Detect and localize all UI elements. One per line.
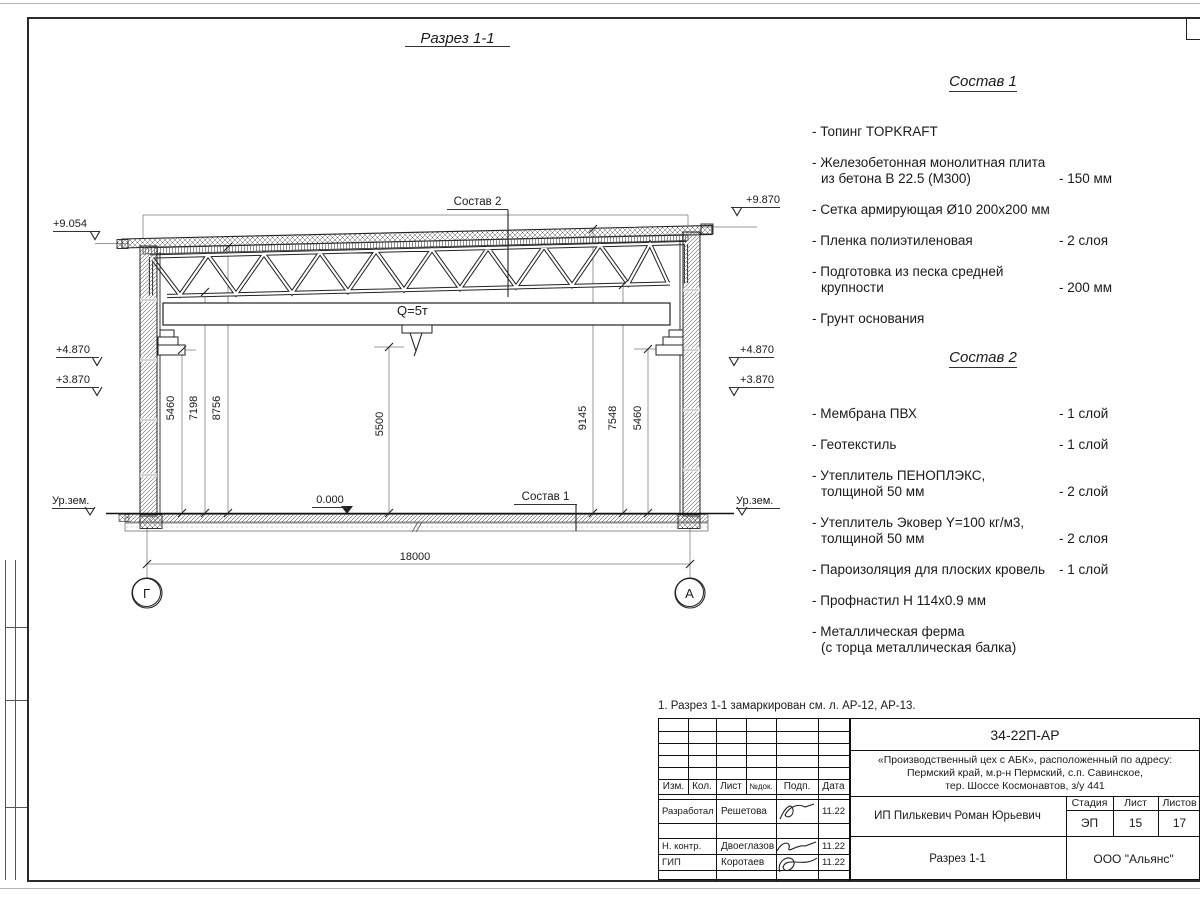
tb-col-data: Дата (818, 779, 849, 794)
dim-right-9145: 9145 (577, 393, 591, 443)
material-name: - Грунт основания (812, 311, 1059, 327)
dim-span: 18000 (385, 551, 445, 563)
zero-level-label: 0.000 (312, 494, 348, 508)
material-value: - 1 слой (1059, 437, 1154, 453)
tb-project-line2: Пермский край, м.р-н Пермский, с.п. Сави… (907, 767, 1143, 780)
tb-date-ncontrol: 11.22 (818, 838, 849, 854)
material-item: - Железобетонная монолитная плита из бет… (812, 155, 1154, 187)
material-value: - 2 слоя (1059, 531, 1154, 547)
corner-stamp-box (1186, 17, 1200, 40)
margin-stamp-line (5, 700, 27, 701)
tb-sheets-label: Листов (1158, 796, 1200, 810)
tb-role-developer: Разработал (659, 799, 719, 823)
material-name: - Профнастил Н 114х0.9 мм (812, 593, 1059, 609)
material-item: - Металлическая ферма (с торца металличе… (812, 624, 1154, 656)
elevation-left-low: +3.870 (56, 374, 99, 388)
elevation-right-low: +3.870 (729, 374, 774, 388)
elevation-right-crane: +4.870 (729, 344, 774, 358)
sheet-bottom-edge (0, 888, 1200, 889)
tb-name-developer: Решетова (718, 799, 779, 823)
material-value: - 150 мм (1059, 171, 1154, 187)
material-name: - Пленка полиэтиленовая (812, 233, 1059, 249)
elevation-right-roof: +9.870 (731, 194, 780, 208)
signature (778, 801, 816, 823)
drawing-sheet: { "sheet": { "note": "1. Разрез 1-1 зама… (0, 0, 1200, 900)
floor (106, 514, 734, 533)
tb-client: ИП Пилькевич Роман Юрьевич (849, 796, 1066, 836)
tb-company: ООО "Альянс" (1066, 836, 1200, 881)
dim-left-5460: 5460 (165, 383, 179, 433)
tb-role-ncontrol: Н. контр. (659, 838, 719, 854)
material-item: - Профнастил Н 114х0.9 мм (812, 593, 1154, 609)
material-name: - Утеплитель ПЕНОПЛЭКС, толщиной 50 мм (812, 468, 1059, 500)
material-item: - Сетка армирующая Ø10 200х200 мм (812, 202, 1154, 218)
tb-col-list: Лист (716, 779, 746, 794)
sostav1-title-text: Состав 1 (949, 73, 1017, 92)
material-name: - Пароизоляция для плоских кровель (812, 562, 1059, 578)
sostav2-title-text: Состав 2 (949, 349, 1017, 368)
sostav2-title: Состав 2 (812, 350, 1154, 366)
material-item: - Геотекстиль - 1 слой (812, 437, 1154, 453)
foundation-left (140, 515, 162, 529)
material-item: - Утеплитель ПЕНОПЛЭКС, толщиной 50 мм -… (812, 468, 1154, 500)
material-item: - Пароизоляция для плоских кровель - 1 с… (812, 562, 1154, 578)
tb-col-izm: Изм. (659, 779, 688, 794)
tb-name-gip: Коротаев (718, 854, 779, 870)
tb-role-gip: ГИП (659, 854, 719, 870)
material-item: - Грунт основания (812, 311, 1154, 327)
sheet-note: 1. Разрез 1-1 замаркирован см. л. АР-12,… (658, 700, 916, 712)
tb-project-line3: тер. Шоссе Космонавтов, з/у 441 (945, 780, 1105, 793)
material-item: - Подготовка из песка средней крупности … (812, 264, 1154, 296)
tb-sheets-value: 17 (1158, 810, 1200, 836)
dim-right-7548: 7548 (607, 393, 621, 443)
dim-center-5500: 5500 (374, 399, 388, 449)
material-value: - 1 слой (1059, 406, 1154, 422)
crane-corbels (158, 330, 683, 355)
tb-section-name: Разрез 1-1 (849, 836, 1066, 881)
ground-level-label-left: Ур.зем. (52, 495, 94, 509)
tb-project: «Производственный цех с АБК», расположен… (849, 750, 1200, 796)
crane-capacity-label: Q=5т (397, 305, 441, 317)
material-value: - 1 слой (1059, 562, 1154, 578)
callout-sostav1: Состав 1 (514, 491, 577, 505)
tb-project-line1: «Производственный цех с АБК», расположен… (878, 754, 1172, 767)
signature (774, 838, 820, 878)
material-name: - Утеплитель Эковер Y=100 кг/м3, толщино… (812, 515, 1059, 547)
foundation-right (678, 515, 700, 529)
dim-left-7198: 7198 (188, 383, 202, 433)
callout-sostav2: Состав 2 (447, 196, 508, 210)
view-title: Разрез 1-1 (405, 33, 510, 47)
tb-sheet-value: 15 (1113, 810, 1158, 836)
tb-date-developer: 11.22 (818, 799, 849, 823)
sostav1-panel: Состав 1 - Топинг TOPKRAFT - Железобетон… (812, 74, 1154, 342)
material-name: - Мембрана ПВХ (812, 406, 1059, 422)
material-name: - Сетка армирующая Ø10 200х200 мм (812, 202, 1059, 218)
tb-col-kol: Кол. (688, 779, 716, 794)
tb-sheet-label: Лист (1113, 796, 1158, 810)
tb-name-ncontrol: Двоеглазов (718, 838, 779, 854)
elevation-left-roof: +9.054 (53, 218, 100, 232)
material-item: - Топинг TOPKRAFT (812, 124, 1154, 140)
tb-doc-number: 34-22П-АР (849, 719, 1200, 750)
sostav2-panel: Состав 2 - Мембрана ПВХ - 1 слой - Геоте… (812, 350, 1154, 671)
callout-leaders (508, 210, 576, 531)
tb-col-podp: Подп. (776, 779, 818, 794)
axis-marker-left: Г (132, 578, 161, 607)
sostav1-title: Состав 1 (812, 74, 1154, 90)
tb-date-gip: 11.22 (818, 854, 849, 870)
axis-marker-right: А (675, 578, 704, 607)
material-item: - Мембрана ПВХ - 1 слой (812, 406, 1154, 422)
material-value: - 200 мм (1059, 280, 1154, 296)
dim-right-5460: 5460 (632, 393, 646, 443)
material-name: - Подготовка из песка средней крупности (812, 264, 1059, 296)
tb-stage-value: ЭП (1066, 810, 1113, 836)
material-item: - Утеплитель Эковер Y=100 кг/м3, толщино… (812, 515, 1154, 547)
material-name: - Металлическая ферма (с торца металличе… (812, 624, 1059, 656)
crane-hook (410, 333, 422, 356)
material-value: - 2 слоя (1059, 233, 1154, 249)
material-name: - Геотекстиль (812, 437, 1059, 453)
tb-stage-label: Стадия (1066, 796, 1113, 810)
material-name: - Топинг TOPKRAFT (812, 124, 1059, 140)
elevation-left-crane: +4.870 (56, 344, 99, 358)
margin-stamp-line (5, 807, 27, 808)
ground-level-label-right: Ур.зем. (736, 495, 780, 509)
tb-col-ndok: №док. (746, 779, 776, 794)
material-name: - Железобетонная монолитная плита из бет… (812, 155, 1059, 187)
title-block: Изм. Кол. Лист №док. Подп. Дата Разработ… (658, 718, 1200, 880)
material-value: - 2 слой (1059, 484, 1154, 500)
material-item: - Пленка полиэтиленовая - 2 слоя (812, 233, 1154, 249)
dim-left-8756: 8756 (211, 383, 225, 433)
